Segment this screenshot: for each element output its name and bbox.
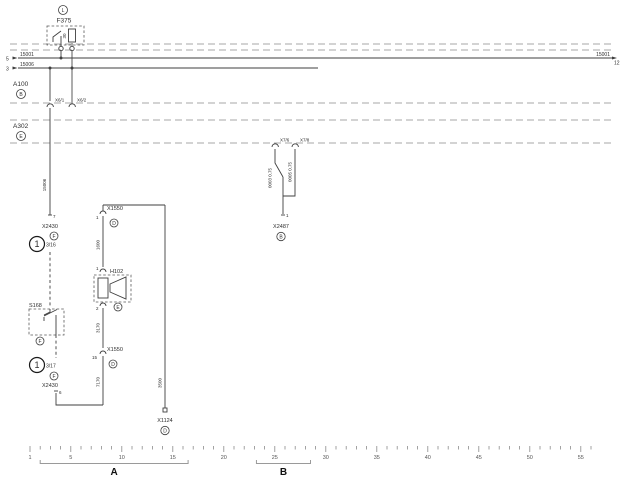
x2487-name: X2487 (273, 224, 289, 230)
x2430-bottom-pin: 6 (59, 390, 62, 395)
bus1-left-pin: 5 (6, 57, 9, 63)
bus2-left-label: 15006 (20, 62, 34, 68)
wire-label: 3500 (158, 377, 163, 388)
ruler-number: 45 (476, 455, 482, 461)
horn-body-icon (98, 278, 108, 298)
x1550-top-pin: 1 (96, 215, 99, 220)
section-label: A (111, 467, 118, 478)
connector-hook-icon (69, 104, 75, 107)
wiring-diagram: L F375 30 5 15001 15001 12 3 15006 A100 … (0, 0, 624, 484)
bottom-return-wire (56, 393, 103, 405)
connector-hook-icon (47, 104, 53, 107)
junction-dot (71, 67, 74, 70)
connector-hook-icon (100, 269, 106, 272)
wire-label: 3170 (96, 322, 101, 333)
left-branch: 15006 7 X2430 F 1 3/16 S168 F 1 3/17 F X… (29, 108, 103, 405)
connector-hook-icon (100, 351, 106, 354)
connector-hook-icon (100, 211, 106, 214)
module-a100: A100 B X6/1 X6/2 (13, 68, 87, 107)
horn-funnel-icon (110, 277, 126, 299)
fuse-contact-icon (53, 31, 61, 42)
bus1-left-arrow-icon (13, 57, 18, 60)
a302-pin2-label: X7/8 (300, 138, 310, 143)
section-bracket-icon (256, 460, 310, 464)
x2430-top-location-letter: F (52, 234, 55, 240)
ruler-number: 50 (527, 455, 533, 461)
x1550-top-location-letter: D (112, 221, 116, 227)
fuse-f375: L F375 30 (47, 6, 84, 105)
a302-pin1-label: X7/6 (280, 138, 290, 143)
fuse-name: F375 (57, 18, 72, 25)
a302-name: A302 (13, 123, 29, 130)
wire-label: 1600 (96, 239, 101, 250)
x1124-name: X1124 (157, 418, 173, 424)
wire-label: 7170 (96, 376, 101, 387)
x2487-pin: 1 (286, 213, 289, 218)
switch-contact-icon (44, 309, 57, 335)
ruler-number: 5 (69, 455, 72, 461)
fuse-location-letter: L (62, 8, 65, 14)
ruler-number: 20 (221, 455, 227, 461)
ruler-sections: AB (40, 460, 310, 478)
bus2-left-pin: 3 (6, 67, 9, 73)
a100-name: A100 (13, 81, 29, 88)
note-number: 1 (34, 360, 39, 370)
h102-name: H102 (110, 269, 123, 275)
fuse-rating: 30 (62, 33, 67, 39)
ruler-number: 55 (578, 455, 584, 461)
wire-label: 0003 0.75 (268, 167, 273, 188)
a302-branch-x2487: 0003 0.75 0005 0.75 1 X2487 B (268, 149, 296, 241)
ruler-number: 15 (170, 455, 176, 461)
x1124-location-letter: D (163, 429, 167, 435)
x2430-bottom-location-letter: F (52, 374, 55, 380)
connector-hook-icon (272, 144, 278, 147)
bus-line-2: 3 15006 (6, 62, 318, 73)
bus-line-1: 5 15001 15001 12 (6, 52, 620, 67)
x2430-top-pin: 7 (53, 214, 56, 219)
x1550-bottom-name: X1550 (107, 347, 123, 353)
middle-branch: X1550 1 D 1600 1 H102 2 E 3170 X1550 15 … (92, 205, 165, 405)
section-bracket-icon (40, 460, 188, 464)
ruler-number: 35 (374, 455, 380, 461)
x1550-bottom-pin: 15 (92, 355, 98, 360)
x2430-bottom-ref: 3/17 (46, 364, 56, 370)
x1550-bottom-location-letter: D (111, 362, 115, 368)
s168-name: S168 (29, 303, 42, 309)
section-label: B (280, 467, 287, 478)
x1550-top-name: X1550 (107, 206, 123, 212)
bus1-right-pin: 12 (614, 61, 620, 67)
h102-pin-top: 1 (96, 266, 99, 271)
bus1-right-arrow-icon (612, 57, 617, 60)
bus2-left-arrow-icon (13, 67, 18, 70)
a100-pin2-label: X6/2 (77, 98, 87, 103)
bus1-right-label: 15001 (596, 52, 610, 58)
junction-dot (60, 57, 63, 60)
ruler-number: 30 (323, 455, 329, 461)
x2430-bottom-name: X2430 (42, 383, 58, 389)
a100-pin1-label: X6/1 (55, 98, 65, 103)
ruler-number: 25 (272, 455, 278, 461)
track-ruler: 1510152025303540455055 (28, 446, 591, 461)
connector-hook-icon (100, 303, 106, 306)
x2430-top-ref: 3/16 (46, 243, 56, 249)
wire-label: 0005 0.75 (288, 161, 293, 182)
wire-label: 15006 (42, 178, 47, 191)
connector-hook-icon (292, 144, 298, 147)
module-boundary-lines (10, 44, 614, 143)
terminal-icon (163, 408, 167, 412)
bus1-left-label: 15001 (20, 52, 34, 58)
s168-box-outline (29, 309, 64, 335)
ruler-number: 40 (425, 455, 431, 461)
wiring-diagram-page: L F375 30 5 15001 15001 12 3 15006 A100 … (0, 0, 624, 484)
fuse-element-icon (69, 29, 76, 42)
h102-pin-bottom: 2 (96, 306, 99, 311)
s168-location-letter: F (38, 339, 41, 345)
ruler-number: 10 (119, 455, 125, 461)
right-vertical-branch: 3500 X1124 D (157, 205, 173, 435)
ruler-number: 1 (28, 455, 31, 461)
note-number: 1 (34, 239, 39, 249)
x2430-top-name: X2430 (42, 224, 58, 230)
